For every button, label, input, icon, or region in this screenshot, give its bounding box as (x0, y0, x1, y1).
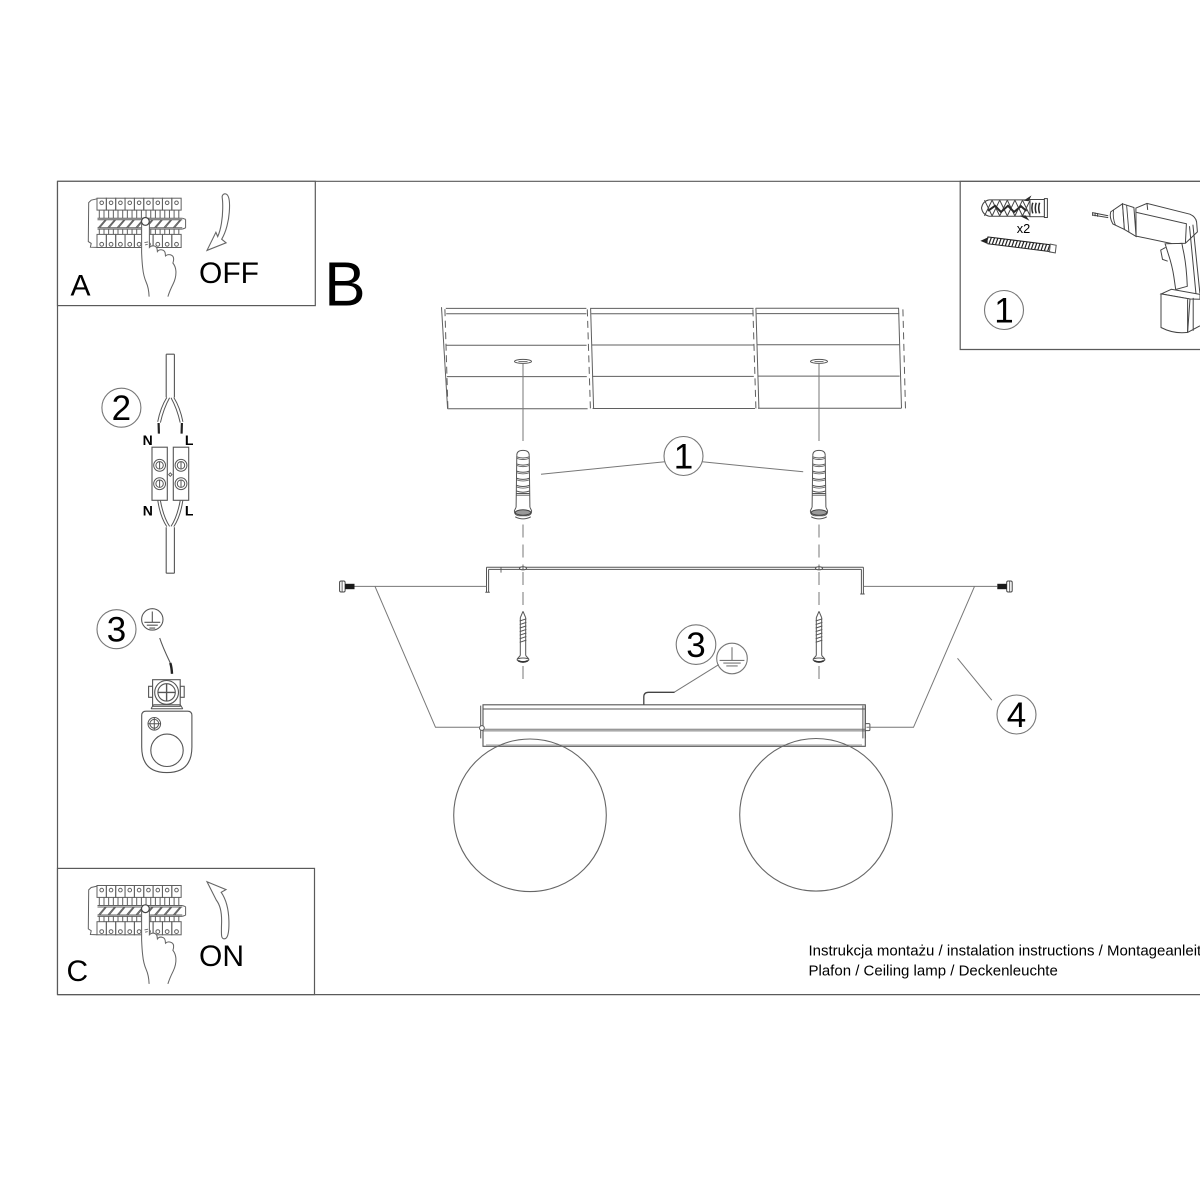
svg-text:C: C (67, 955, 89, 988)
svg-text:Instrukcja montażu / instalati: Instrukcja montażu / instalation instruc… (809, 943, 1200, 960)
svg-text:N: N (143, 432, 153, 448)
svg-text:1: 1 (674, 438, 693, 477)
svg-text:3: 3 (107, 611, 126, 650)
svg-text:OFF: OFF (199, 257, 259, 290)
svg-text:L: L (185, 503, 194, 519)
svg-text:L: L (185, 432, 194, 448)
svg-text:A: A (71, 270, 91, 303)
svg-text:x2: x2 (1017, 221, 1031, 236)
svg-text:N: N (143, 503, 153, 519)
svg-text:3: 3 (686, 626, 705, 665)
svg-text:4: 4 (1007, 696, 1026, 735)
svg-text:ON: ON (199, 940, 244, 973)
svg-text:Plafon / Ceiling lamp / Decken: Plafon / Ceiling lamp / Deckenleuchte (809, 963, 1058, 980)
svg-text:2: 2 (112, 389, 131, 428)
svg-text:B: B (324, 251, 365, 320)
svg-text:1: 1 (994, 292, 1013, 331)
